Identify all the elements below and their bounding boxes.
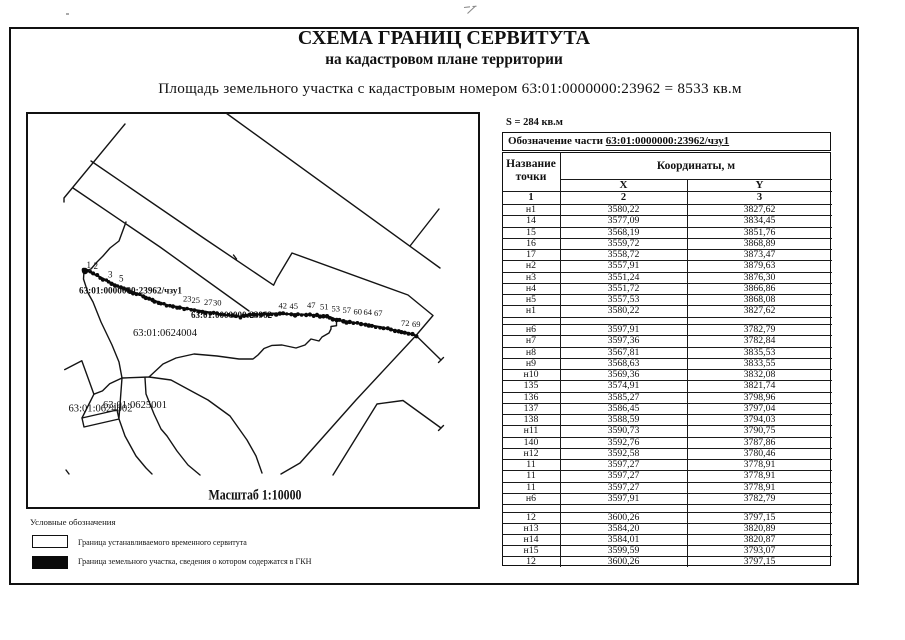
svg-text:3: 3 (108, 270, 113, 280)
svg-text:64: 64 (364, 307, 373, 317)
svg-text:63:01:0000000:23962/чзу1: 63:01:0000000:23962/чзу1 (79, 287, 182, 297)
svg-text:1: 1 (87, 260, 92, 270)
svg-text:42: 42 (279, 301, 288, 311)
svg-text:69: 69 (412, 319, 421, 329)
svg-text:27: 27 (204, 297, 213, 307)
svg-text:47: 47 (307, 300, 316, 310)
svg-text:45: 45 (290, 301, 299, 311)
svg-text:60: 60 (354, 306, 363, 316)
svg-text:Масштаб 1:10000: Масштаб 1:10000 (209, 488, 302, 504)
svg-text:63:01:0624004: 63:01:0624004 (133, 327, 197, 339)
svg-text:67: 67 (374, 308, 383, 318)
svg-text:30: 30 (213, 298, 222, 308)
svg-text:72: 72 (401, 318, 410, 328)
svg-text:5: 5 (119, 274, 124, 284)
svg-text:25: 25 (192, 295, 201, 305)
svg-text:51: 51 (320, 302, 329, 312)
svg-text:57: 57 (343, 305, 352, 315)
svg-text:53: 53 (332, 304, 341, 314)
svg-text:2: 2 (94, 261, 99, 271)
svg-text:23: 23 (183, 294, 192, 304)
svg-text:63:01:0625001: 63:01:0625001 (103, 399, 167, 411)
